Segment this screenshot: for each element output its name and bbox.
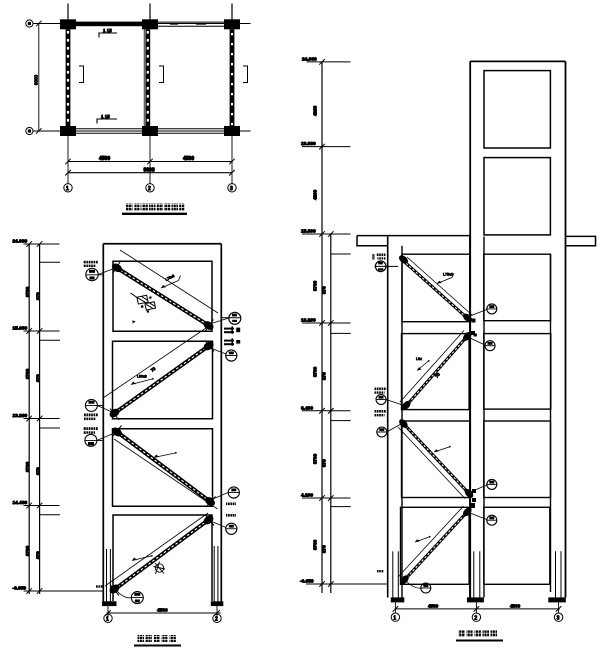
svg-text:8700: 8700	[25, 368, 30, 379]
svg-text:3: 3	[557, 615, 560, 621]
svg-text:1: 1	[106, 617, 109, 623]
svg-text:8700: 8700	[313, 366, 318, 377]
svg-text:4500: 4500	[510, 604, 521, 609]
svg-text:870: 870	[35, 467, 40, 475]
svg-text:15.600: 15.600	[301, 229, 316, 235]
svg-text:870: 870	[35, 551, 40, 559]
svg-text:9000: 9000	[144, 168, 155, 174]
svg-text:-0.050: -0.050	[300, 579, 314, 585]
svg-text:1: 1	[66, 186, 69, 192]
svg-text:9000: 9000	[34, 74, 39, 85]
svg-text:L75x6: L75x6	[443, 273, 453, 277]
svg-text:24.000: 24.000	[13, 239, 28, 245]
svg-text:8.400: 8.400	[301, 405, 313, 411]
svg-text:1 15: 1 15	[103, 28, 112, 33]
svg-text:1 15: 1 15	[101, 114, 110, 119]
svg-text:13.200: 13.200	[301, 318, 316, 324]
svg-text:8700: 8700	[313, 280, 318, 291]
svg-text:8700: 8700	[313, 539, 318, 550]
svg-text:870: 870	[321, 459, 326, 467]
svg-text:13.200: 13.200	[13, 413, 28, 419]
svg-text:3: 3	[230, 186, 233, 192]
svg-text:4500: 4500	[157, 608, 168, 614]
svg-text:870: 870	[321, 545, 326, 553]
svg-text:4200: 4200	[313, 189, 318, 200]
svg-text:1: 1	[393, 615, 396, 621]
svg-text:2: 2	[474, 615, 477, 621]
svg-text:L75x6: L75x6	[165, 274, 176, 282]
svg-text:4500: 4500	[183, 156, 194, 162]
svg-text:15.600: 15.600	[13, 326, 28, 332]
svg-text:870: 870	[35, 292, 40, 300]
svg-text:4200: 4200	[313, 105, 318, 116]
svg-text:L9x: L9x	[416, 357, 422, 361]
svg-text:8700: 8700	[313, 453, 318, 464]
svg-text:870: 870	[321, 372, 326, 380]
svg-text:870: 870	[35, 374, 40, 382]
svg-text:70: 70	[150, 366, 157, 373]
svg-text:8700: 8700	[25, 545, 30, 556]
svg-text:8700: 8700	[25, 286, 30, 297]
svg-text:4500: 4500	[99, 156, 110, 162]
svg-text:14.400: 14.400	[13, 500, 28, 506]
svg-text:2: 2	[148, 186, 151, 192]
svg-text:2: 2	[215, 617, 218, 623]
svg-text:4.200: 4.200	[301, 493, 313, 499]
svg-text:19.800: 19.800	[301, 141, 316, 147]
svg-text:L90x8: L90x8	[137, 375, 147, 379]
svg-text:-0.050: -0.050	[13, 586, 27, 592]
svg-text:4500: 4500	[428, 604, 439, 609]
svg-text:8700: 8700	[25, 461, 30, 472]
svg-text:870: 870	[321, 286, 326, 294]
svg-text:24.000: 24.000	[302, 56, 317, 62]
